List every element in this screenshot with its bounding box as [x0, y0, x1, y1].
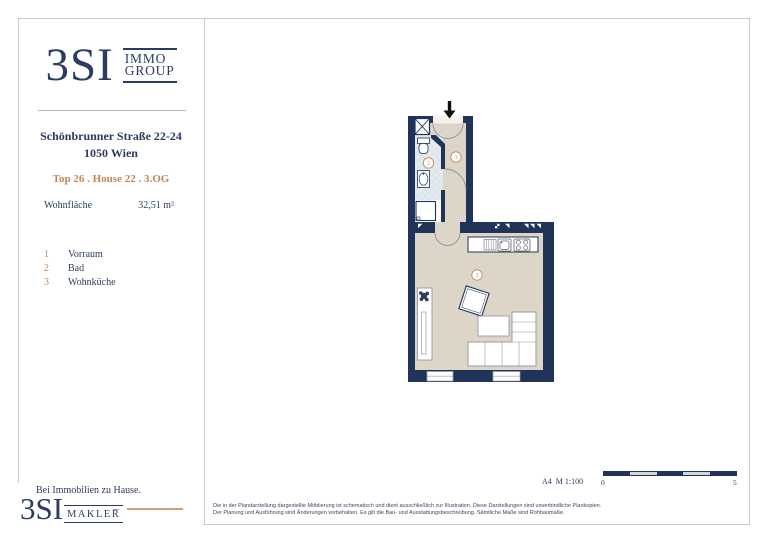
scale-segment: [657, 471, 684, 476]
toilet-icon: [418, 138, 430, 154]
room-name: Wohnküche: [68, 276, 116, 290]
scale-segment: [630, 471, 657, 476]
scale-end-label: 5: [733, 478, 737, 487]
interior-doorway: [435, 222, 460, 233]
logo-separator-line: [38, 110, 186, 111]
footer-dash-line: [113, 509, 119, 510]
room-row-2: 2 Bad: [44, 262, 116, 276]
footer-accent-line: [127, 508, 183, 510]
floor-plan: 1 2 3: [408, 100, 558, 390]
room-name: Vorraum: [68, 248, 103, 262]
room-number: 3: [44, 276, 68, 290]
logo-brand-text: 3SI: [45, 44, 113, 86]
footer-makler-text: MAKLER: [67, 509, 120, 520]
room-badge-1-label: 1: [454, 154, 457, 161]
cooktop-icon: [514, 239, 530, 251]
footer-brand-text: 3SI: [20, 494, 63, 524]
washing-machine-icon: [416, 202, 436, 221]
room-row-1: 1 Vorraum: [44, 248, 116, 262]
scale-start-label: 0: [601, 478, 605, 487]
kitchen-counter: [468, 237, 538, 252]
scale-bar: [603, 471, 737, 476]
address-line-1: Schönbrunner Straße 22-24: [18, 128, 204, 145]
floor-plan-svg: 1 2 3: [408, 100, 558, 390]
footer-makler-block: MAKLER: [64, 505, 123, 523]
logo-sub-block: IMMO GROUP: [123, 48, 177, 83]
room-badge-3-label: 3: [475, 272, 478, 279]
room-badge-2-label: 2: [427, 160, 430, 167]
scale-segment: [683, 471, 710, 476]
sink-icon: [498, 239, 511, 251]
room-number: 1: [44, 248, 68, 262]
room-name: Bad: [68, 262, 84, 276]
living-area-row: Wohnfläche 32,51 m²: [44, 200, 174, 211]
panel-divider: [204, 18, 205, 524]
company-logo: 3SI IMMO GROUP: [18, 44, 204, 86]
room-number: 2: [44, 262, 68, 276]
scale-label: A4 M 1:100: [542, 477, 583, 486]
coffee-table: [478, 316, 509, 336]
page-border: [18, 18, 750, 525]
address-line-2: 1050 Wien: [18, 145, 204, 162]
area-label: Wohnfläche: [44, 200, 92, 211]
area-value: 32,51 m²: [138, 200, 174, 211]
scale-segment: [603, 471, 630, 476]
entrance-opening: [433, 116, 463, 124]
room-list: 1 Vorraum 2 Bad 3 Wohnküche: [44, 248, 116, 290]
property-address: Schönbrunner Straße 22-24 1050 Wien: [18, 128, 204, 162]
floorplan-document: 3SI IMMO GROUP Schönbrunner Straße 22-24…: [0, 0, 770, 544]
disclaimer-text: Die in der Plandarstellung dargestellte …: [213, 503, 609, 517]
unit-title: Top 26 . House 22 . 3.OG: [18, 173, 204, 185]
shaft-symbol: [415, 119, 430, 135]
logo-group-text: GROUP: [125, 65, 175, 78]
room-row-3: 3 Wohnküche: [44, 276, 116, 290]
scale-segment: [710, 471, 737, 476]
washbasin-icon: [418, 171, 430, 188]
